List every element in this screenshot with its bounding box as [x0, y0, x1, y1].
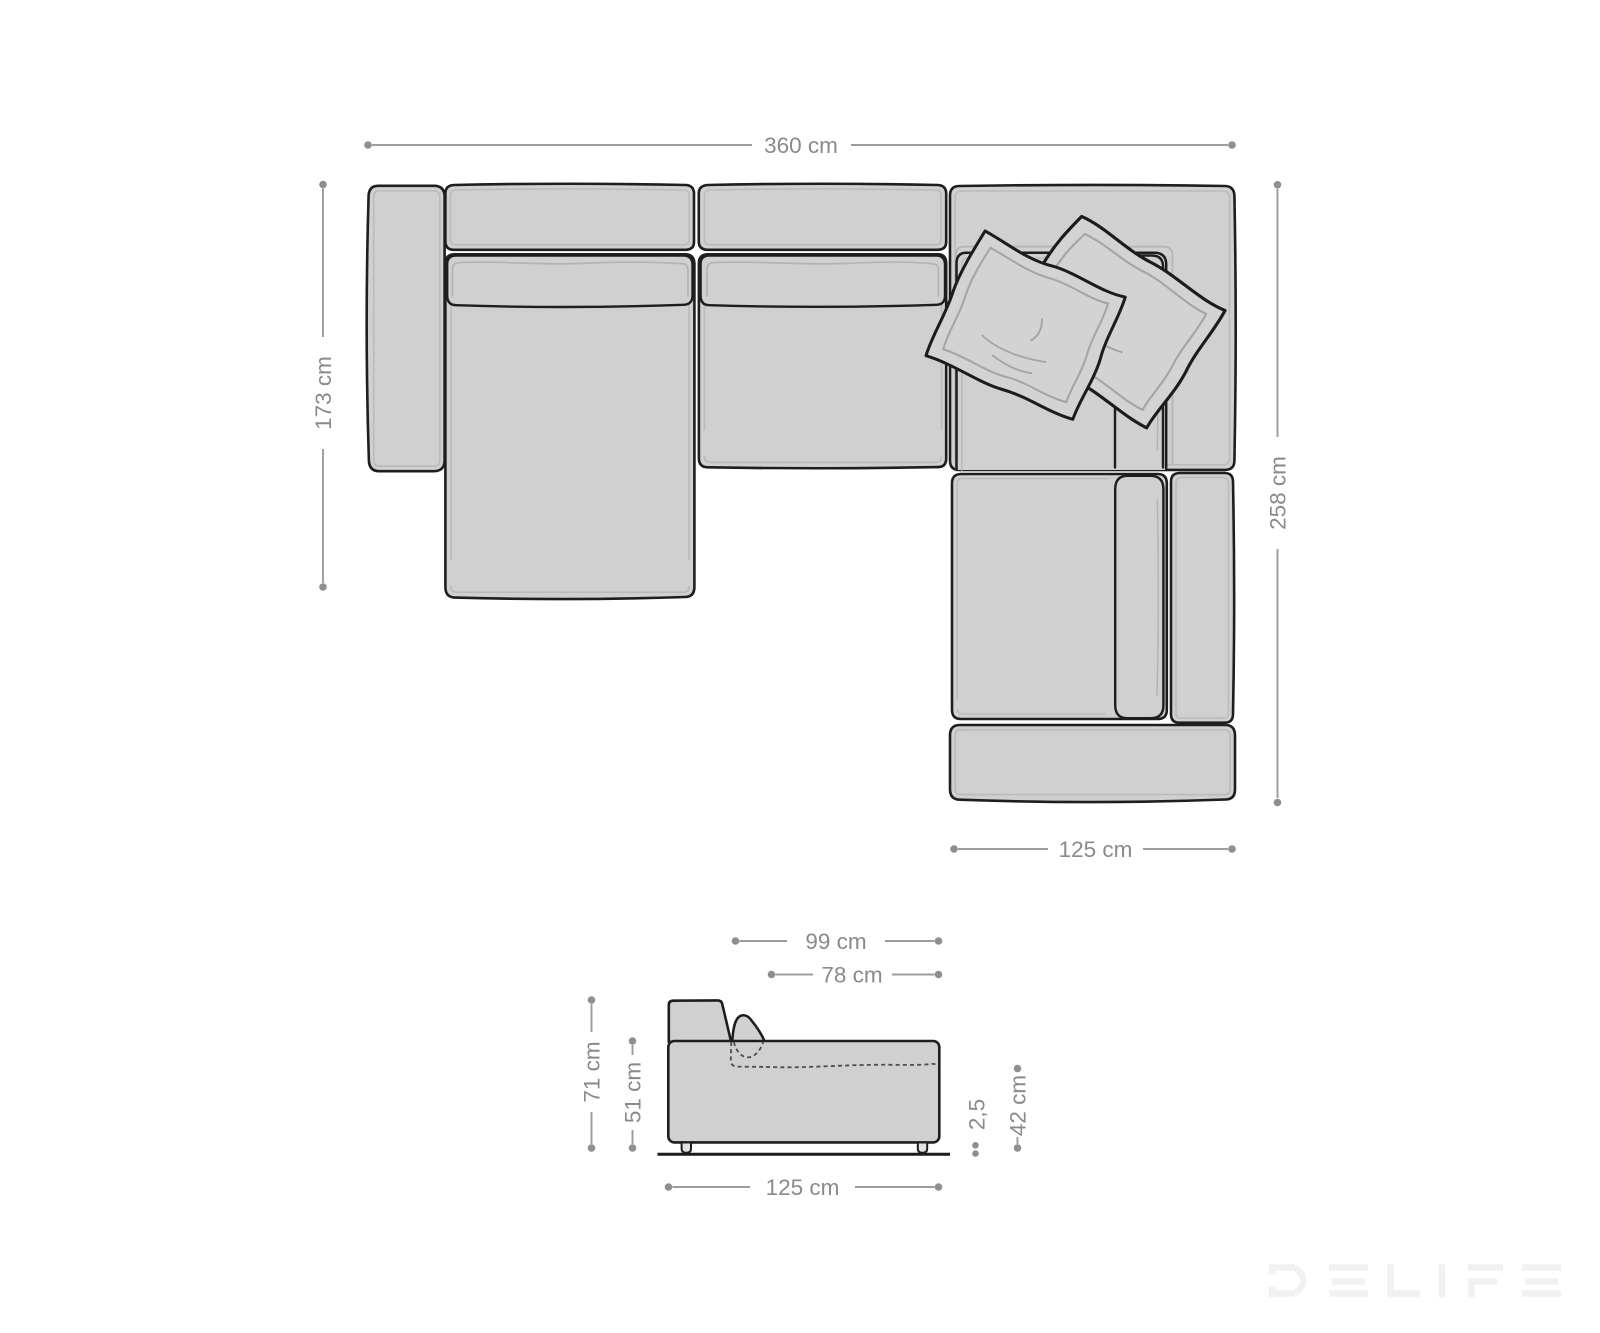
svg-text:258 cm: 258 cm [1266, 456, 1291, 530]
svg-text:125 cm: 125 cm [766, 1175, 840, 1200]
svg-text:78 cm: 78 cm [821, 963, 882, 988]
svg-text:125 cm: 125 cm [1059, 837, 1133, 862]
svg-text:71 cm: 71 cm [580, 1041, 605, 1102]
svg-text:173 cm: 173 cm [311, 356, 336, 430]
svg-text:2,5: 2,5 [965, 1099, 990, 1130]
svg-text:99 cm: 99 cm [805, 929, 866, 954]
svg-text:51 cm: 51 cm [621, 1062, 646, 1123]
svg-text:42 cm: 42 cm [1006, 1075, 1031, 1136]
svg-text:360 cm: 360 cm [764, 133, 838, 158]
